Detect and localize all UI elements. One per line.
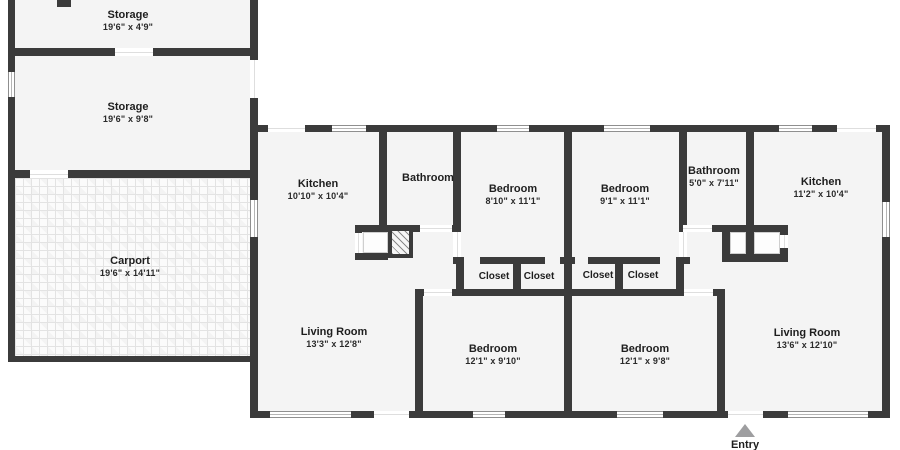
wall-segment [679,132,687,232]
entry-label: Entry [731,439,759,450]
wall-segment [588,257,660,264]
wall-segment [305,125,332,132]
room-name: Kitchen [794,175,849,189]
wall-segment [250,98,258,200]
room-dims: 10'10" x 10'4" [288,191,349,203]
wall-segment [250,125,268,132]
bedroom-top-right-label: Bedroom 9'1" x 11'1" [600,182,650,208]
wall-segment [746,132,754,262]
wall-segment [452,289,680,296]
door-opening [683,225,712,232]
storage-1-label: Storage 19'6" x 4'9" [103,8,153,34]
living-room-right-label: Living Room 13'6" x 12'10" [774,326,841,352]
bathroom-right-label: Bathroom 5'0" x 7'11" [688,164,740,190]
wall-segment [560,257,575,264]
room-dims: 12'1" x 9'10" [465,356,520,368]
wall-segment [722,254,788,262]
wall-segment [355,253,388,260]
wall-segment [882,125,890,202]
wall-segment [453,257,463,264]
room-dims: 19'6" x 14'11" [100,268,160,280]
wall-segment [812,125,837,132]
room-dims: 13'3" x 12'8" [301,339,368,351]
wall-segment [615,257,623,296]
kitchen-right-label: Kitchen 11'2" x 10'4" [794,175,849,201]
window [270,411,351,418]
room-dims: 13'6" x 12'10" [774,340,841,352]
room-name: Bedroom [600,182,650,196]
bedroom-bottom-left-label: Bedroom 12'1" x 9'10" [465,342,520,368]
wall-segment [379,132,387,232]
room-dims: 12'1" x 9'8" [620,356,670,368]
door-opening [30,170,68,178]
wall-segment [763,411,788,418]
entry-arrow-icon [735,424,755,437]
wall-segment [882,237,890,418]
door-opening [250,60,258,98]
wall-segment [250,411,270,418]
room-name: Carport [100,254,160,268]
wall-segment [57,0,71,7]
window [604,125,650,132]
bedroom-top-left-label: Bedroom 8'10" x 11'1" [486,182,541,208]
water-heater-closet [388,227,413,258]
utility-cupboard [730,232,746,254]
room-name: Bedroom [465,342,520,356]
room-name: Bedroom [620,342,670,356]
door-opening [355,233,362,253]
window [882,202,890,237]
window [779,125,812,132]
wall-segment [513,257,521,296]
door-opening [679,232,687,257]
room-name: Living Room [301,325,368,339]
door-opening [684,289,713,296]
window [250,200,258,237]
room-name: Bathroom [402,171,454,185]
wall-segment [415,289,423,418]
room-name: Kitchen [288,177,349,191]
party-wall [564,132,572,418]
room-dims: 5'0" x 7'11" [688,178,740,190]
room-dims: 19'6" x 9'8" [103,114,153,126]
room-dims: 11'2" x 10'4" [794,189,849,201]
wall-segment [678,257,690,264]
room-dims: 9'1" x 11'1" [600,196,650,208]
wall-segment [68,170,257,178]
door-opening [115,48,153,56]
room-name: Storage [103,8,153,22]
floor-plan-canvas: Storage 19'6" x 4'9" Storage 19'6" x 9'8… [0,0,900,450]
door-opening [453,232,461,257]
wall-segment [8,356,257,362]
living-room-left-label: Living Room 13'3" x 12'8" [301,325,368,351]
wall-segment [351,411,374,418]
bedroom-bottom-right-label: Bedroom 12'1" x 9'8" [620,342,670,368]
window [332,125,366,132]
wall-segment [366,125,497,132]
door-opening [268,125,305,132]
window [473,411,505,418]
entry-door-opening [728,411,763,418]
window [497,125,529,132]
window [617,411,663,418]
door-opening [780,235,788,248]
room-name: Bedroom [486,182,541,196]
door-opening [420,225,452,232]
wall-segment [505,411,617,418]
closet-4-label: Closet [628,270,659,281]
wall-segment [8,48,115,56]
wall-segment [355,225,362,233]
wall-segment [250,237,258,418]
wall-segment [153,48,257,56]
wall-segment [452,225,461,232]
utility-cupboard [754,232,780,254]
room-name: Living Room [774,326,841,340]
storage-2-label: Storage 19'6" x 9'8" [103,100,153,126]
room-dims: 8'10" x 11'1" [486,196,541,208]
wall-segment [780,225,788,235]
bathroom-left-label: Bathroom [402,171,454,185]
closet-2-label: Closet [524,271,555,282]
door-opening [837,125,876,132]
room-dims: 19'6" x 4'9" [103,22,153,34]
door-opening [424,289,452,296]
room-name: Storage [103,100,153,114]
door-opening [374,411,409,418]
carport-label: Carport 19'6" x 14'11" [100,254,160,280]
window [8,72,15,97]
room-name: Bathroom [688,164,740,178]
window [788,411,868,418]
utility-cupboard [363,232,388,253]
wall-segment [8,170,30,178]
wall-segment [717,289,725,418]
closet-3-label: Closet [583,270,614,281]
closet-1-label: Closet [479,271,510,282]
wall-segment [453,132,461,232]
wall-segment [650,125,779,132]
wall-segment [529,125,604,132]
kitchen-left-label: Kitchen 10'10" x 10'4" [288,177,349,203]
